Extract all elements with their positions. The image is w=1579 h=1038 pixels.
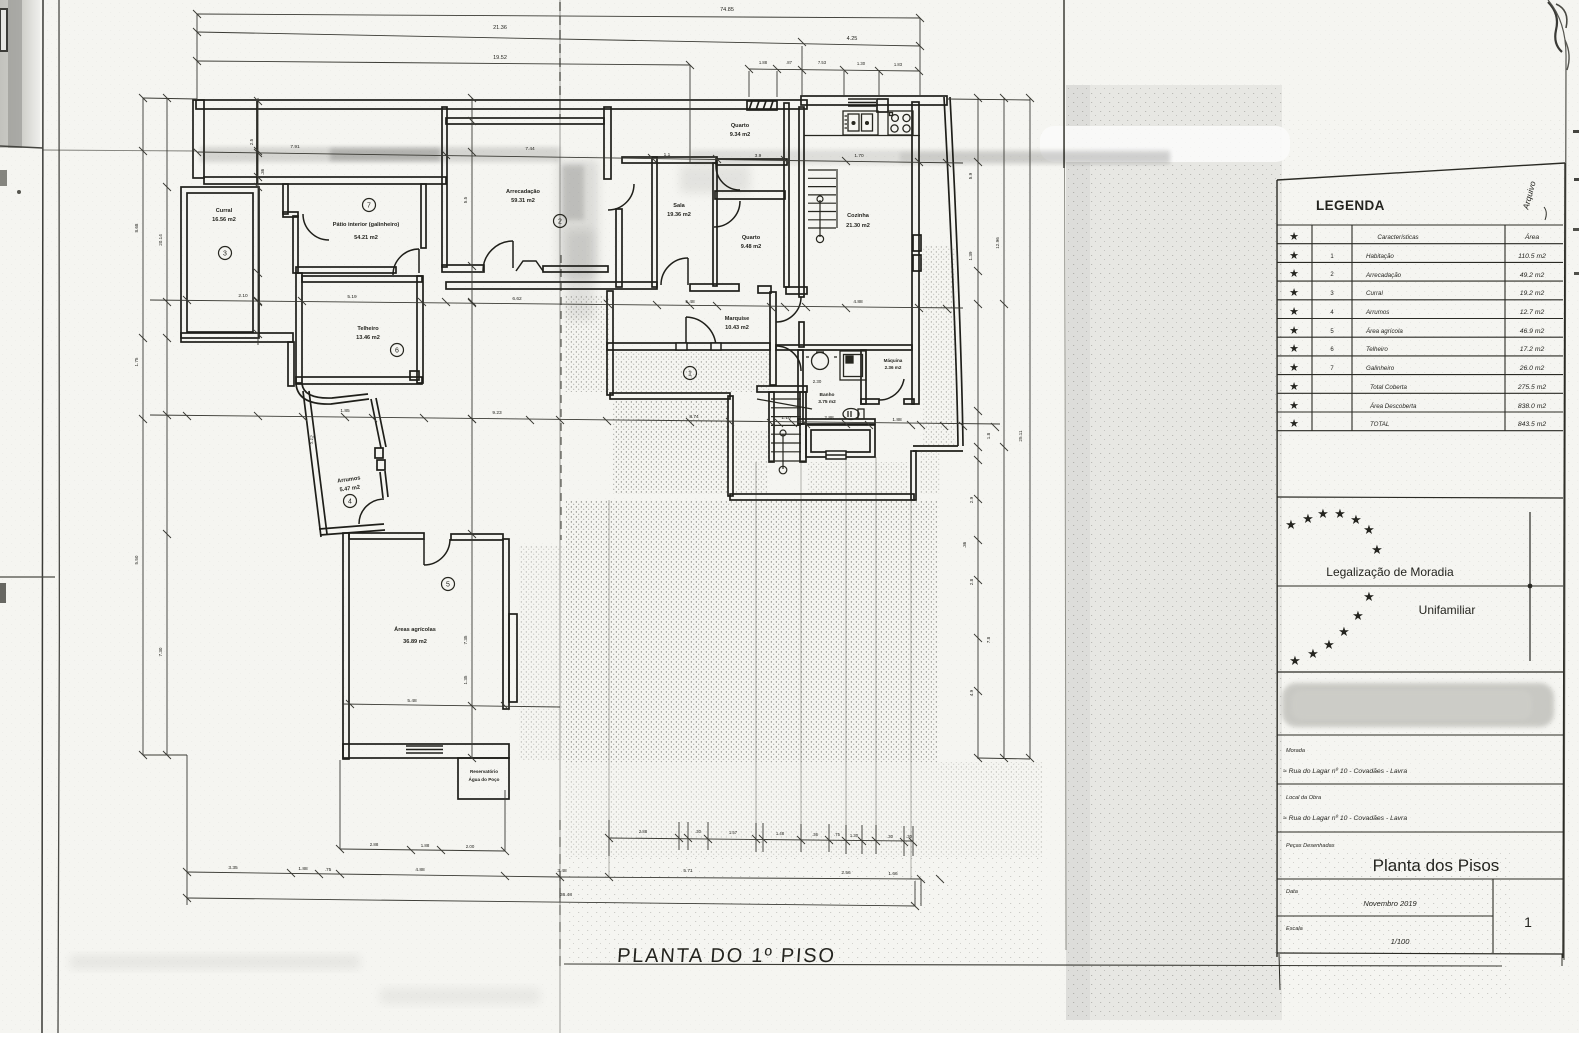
svg-text:★: ★ [1289,268,1299,280]
svg-text:Curral: Curral [216,208,233,214]
svg-text:★: ★ [1352,608,1364,623]
svg-text:8.74: 8.74 [689,414,699,420]
svg-text:★: ★ [1289,250,1299,262]
svg-text:1.75: 1.75 [134,357,139,366]
svg-text:1.88: 1.88 [421,843,430,848]
svg-text:1.35: 1.35 [463,675,468,684]
svg-text:46.9 m2: 46.9 m2 [1520,328,1545,335]
svg-text:★: ★ [1317,506,1329,521]
svg-text:★: ★ [1289,231,1299,243]
svg-text:Quarto: Quarto [731,123,750,129]
svg-text:1.30: 1.30 [850,833,859,838]
svg-text:Arrumos: Arrumos [1365,309,1389,316]
svg-text:843.5 m2: 843.5 m2 [1518,421,1547,428]
svg-text:★: ★ [1350,512,1362,527]
svg-text:7.53: 7.53 [818,60,827,65]
svg-text:1: 1 [1524,914,1532,930]
svg-text:Área: Área [1524,232,1540,241]
svg-text:21.36: 21.36 [493,25,507,31]
svg-text:4.9: 4.9 [969,689,974,696]
svg-text:5.48: 5.48 [407,698,417,704]
svg-text:9.48 m2: 9.48 m2 [741,244,762,250]
svg-text:.30: .30 [906,834,912,839]
svg-text:Arrecadação: Arrecadação [506,189,540,195]
svg-text:Curral: Curral [1366,290,1383,297]
svg-text:2.00: 2.00 [466,844,475,849]
svg-text:2.10: 2.10 [238,293,248,299]
svg-text:★: ★ [1289,400,1299,412]
svg-text:.36: .36 [260,168,265,175]
svg-text:Peças Desenhadas: Peças Desenhadas [1286,843,1335,849]
svg-text:59.31 m2: 59.31 m2 [511,198,535,204]
svg-text:Total Coberta: Total Coberta [1370,384,1407,391]
svg-text:LEGENDA: LEGENDA [1316,198,1385,213]
svg-text:.87: .87 [786,60,792,65]
svg-text:Habitação: Habitação [1366,253,1394,260]
svg-text:≈ Rua do Lagar nº 10 - Cov: ≈ Rua do Lagar nº 10 - Covadães - Lavra [1283,815,1407,822]
svg-text:Banho: Banho [820,392,835,398]
svg-text:★: ★ [1363,522,1375,537]
svg-text:Arrecadação: Arrecadação [1365,272,1402,279]
svg-text:≈ Rua do Lagar nº 10 - Cov: ≈ Rua do Lagar nº 10 - Covadães - Lavra [1283,768,1407,775]
svg-text:13.46 m2: 13.46 m2 [356,335,380,341]
svg-text:Galinheiro: Galinheiro [1366,365,1395,372]
svg-text:★: ★ [1338,624,1350,639]
svg-text:5.5: 5.5 [463,196,468,203]
svg-text:Marquise: Marquise [725,316,750,322]
svg-text:1.10: 1.10 [781,415,791,421]
svg-text:3: 3 [223,251,227,258]
svg-text:Área Descoberta: Área Descoberta [1369,403,1417,410]
svg-text:.30: .30 [887,834,893,839]
svg-text:Reservatório: Reservatório [470,769,498,774]
svg-text:Pátio interior (galinheiro): Pátio interior (galinheiro) [333,222,400,228]
svg-text:5.9: 5.9 [968,172,973,179]
svg-text:1.85: 1.85 [340,408,350,414]
svg-text:1/100: 1/100 [1391,937,1411,946]
svg-text:19.2 m2: 19.2 m2 [1520,290,1545,297]
svg-text:★: ★ [1289,343,1299,355]
svg-text:Planta dos Pisos: Planta dos Pisos [1373,856,1500,875]
svg-text:1.8: 1.8 [986,432,991,439]
svg-text:7.8: 7.8 [986,636,991,643]
svg-text:TOTAL: TOTAL [1370,421,1390,428]
svg-text:2.36 m2: 2.36 m2 [885,365,902,370]
svg-text:5: 5 [446,582,450,589]
svg-text:2.56: 2.56 [841,870,851,876]
svg-text:1.1: 1.1 [664,152,671,158]
svg-text:★: ★ [1285,517,1297,532]
svg-text:3.9: 3.9 [755,153,762,159]
svg-text:5.50: 5.50 [134,555,139,564]
svg-text:1.70: 1.70 [854,153,864,159]
svg-text:★: ★ [1307,646,1319,661]
svg-text:2.9: 2.9 [969,496,974,503]
svg-text:Área agrícola: Área agrícola [1365,328,1403,335]
svg-text:74.85: 74.85 [720,7,734,13]
svg-text:★: ★ [1289,381,1299,393]
svg-text:838.0 m2: 838.0 m2 [1518,403,1547,410]
svg-text:3.75 m2: 3.75 m2 [818,399,836,405]
svg-text:Sala: Sala [673,203,685,209]
svg-text:275.5 m2: 275.5 m2 [1517,384,1547,391]
svg-text:1: 1 [688,371,692,378]
svg-text:★: ★ [1334,506,1346,521]
svg-text:7.91: 7.91 [290,144,300,150]
svg-text:Água do Poço: Água do Poço [469,776,500,782]
svg-text:5.71: 5.71 [683,868,693,874]
svg-text:5.19: 5.19 [347,294,357,300]
svg-text:.36: .36 [962,541,967,548]
svg-text:.75: .75 [834,832,840,837]
svg-text:Características: Características [1377,234,1418,241]
svg-text:★: ★ [1289,287,1299,299]
svg-text:1.83: 1.83 [894,62,903,67]
svg-text:12.7 m2: 12.7 m2 [1520,309,1545,316]
svg-text:★: ★ [1302,511,1314,526]
svg-text:Legalização de Moradia: Legalização de Moradia [1326,565,1454,579]
svg-text:2.88: 2.88 [824,415,834,421]
svg-text:Quarto: Quarto [742,235,761,241]
svg-text:8.68: 8.68 [134,223,139,232]
svg-text:1.88: 1.88 [759,60,768,65]
svg-text:.36: .36 [812,832,818,837]
svg-text:7: 7 [367,203,371,210]
svg-text:1.30: 1.30 [857,61,866,66]
svg-text:1.66: 1.66 [888,871,898,877]
svg-text:Telheiro: Telheiro [357,326,379,332]
svg-text:5.48: 5.48 [685,299,695,305]
svg-text:6.62: 6.62 [512,296,522,302]
svg-text:★: ★ [1371,542,1383,557]
svg-text:21.30 m2: 21.30 m2 [846,223,870,229]
svg-text:20.14: 20.14 [158,234,163,246]
svg-text:1.57: 1.57 [729,830,738,835]
svg-text:12.96: 12.96 [995,237,1000,249]
svg-text:★: ★ [1289,653,1301,668]
svg-text:4.88: 4.88 [415,867,425,873]
svg-text:Escala: Escala [1286,926,1303,932]
svg-text:6: 6 [395,348,399,355]
svg-text:1.48: 1.48 [776,831,785,836]
svg-text:4.25: 4.25 [847,36,858,42]
svg-text:49.2 m2: 49.2 m2 [1520,272,1545,279]
svg-text:4: 4 [348,499,352,506]
svg-text:2.88: 2.88 [370,842,379,847]
svg-text:★: ★ [1289,362,1299,374]
svg-text:Novembro 2019: Novembro 2019 [1363,899,1417,908]
svg-text:★: ★ [1323,637,1335,652]
svg-text:2.30: 2.30 [813,379,822,384]
svg-text:2.5: 2.5 [249,138,254,145]
svg-text:17.2 m2: 17.2 m2 [1520,346,1545,353]
svg-text:36.89 m2: 36.89 m2 [403,639,427,645]
svg-text:16.56 m2: 16.56 m2 [212,217,236,223]
svg-text:26.0 m2: 26.0 m2 [1519,365,1545,372]
svg-text:Unifamiliar: Unifamiliar [1419,603,1476,617]
svg-text:19.52: 19.52 [493,55,507,61]
svg-text:Local da Obra: Local da Obra [1286,795,1321,801]
svg-text:7.30: 7.30 [158,647,163,656]
svg-text:Telheiro: Telheiro [1366,346,1388,353]
svg-text:Data: Data [1286,889,1298,895]
svg-text:.30: .30 [695,829,701,834]
svg-text:2: 2 [558,219,562,226]
svg-text:2.8: 2.8 [969,578,974,585]
svg-text:Máquina: Máquina [884,358,903,363]
svg-text:25.11: 25.11 [1018,430,1023,442]
svg-text:3.48: 3.48 [557,868,567,874]
svg-text:9.34 m2: 9.34 m2 [730,132,751,138]
svg-text:Áreas agrícolas: Áreas agrícolas [394,626,436,633]
svg-text:9.23: 9.23 [492,410,502,416]
svg-text:7.35: 7.35 [463,635,468,644]
svg-text:1.39: 1.39 [968,251,973,260]
svg-text:★: ★ [1289,418,1299,430]
svg-text:Cozinha: Cozinha [847,213,870,219]
svg-text:.75: .75 [325,867,332,873]
svg-text:★: ★ [1289,325,1299,337]
svg-text:36.48: 36.48 [560,892,572,898]
svg-text:★: ★ [1289,306,1299,318]
svg-text:54.21 m2: 54.21 m2 [354,235,378,241]
svg-text:10.43 m2: 10.43 m2 [725,325,749,331]
svg-text:110.5 m2: 110.5 m2 [1518,253,1546,260]
svg-text:★: ★ [1363,589,1375,604]
svg-text:4.88: 4.88 [853,299,863,305]
svg-text:19.36 m2: 19.36 m2 [667,212,691,218]
svg-text:3.35: 3.35 [228,865,238,871]
svg-text:Morada: Morada [1286,748,1305,754]
svg-text:2.88: 2.88 [639,829,648,834]
svg-text:1.88: 1.88 [892,417,902,423]
svg-text:1.88: 1.88 [298,866,308,872]
svg-text:7.44: 7.44 [525,146,535,152]
